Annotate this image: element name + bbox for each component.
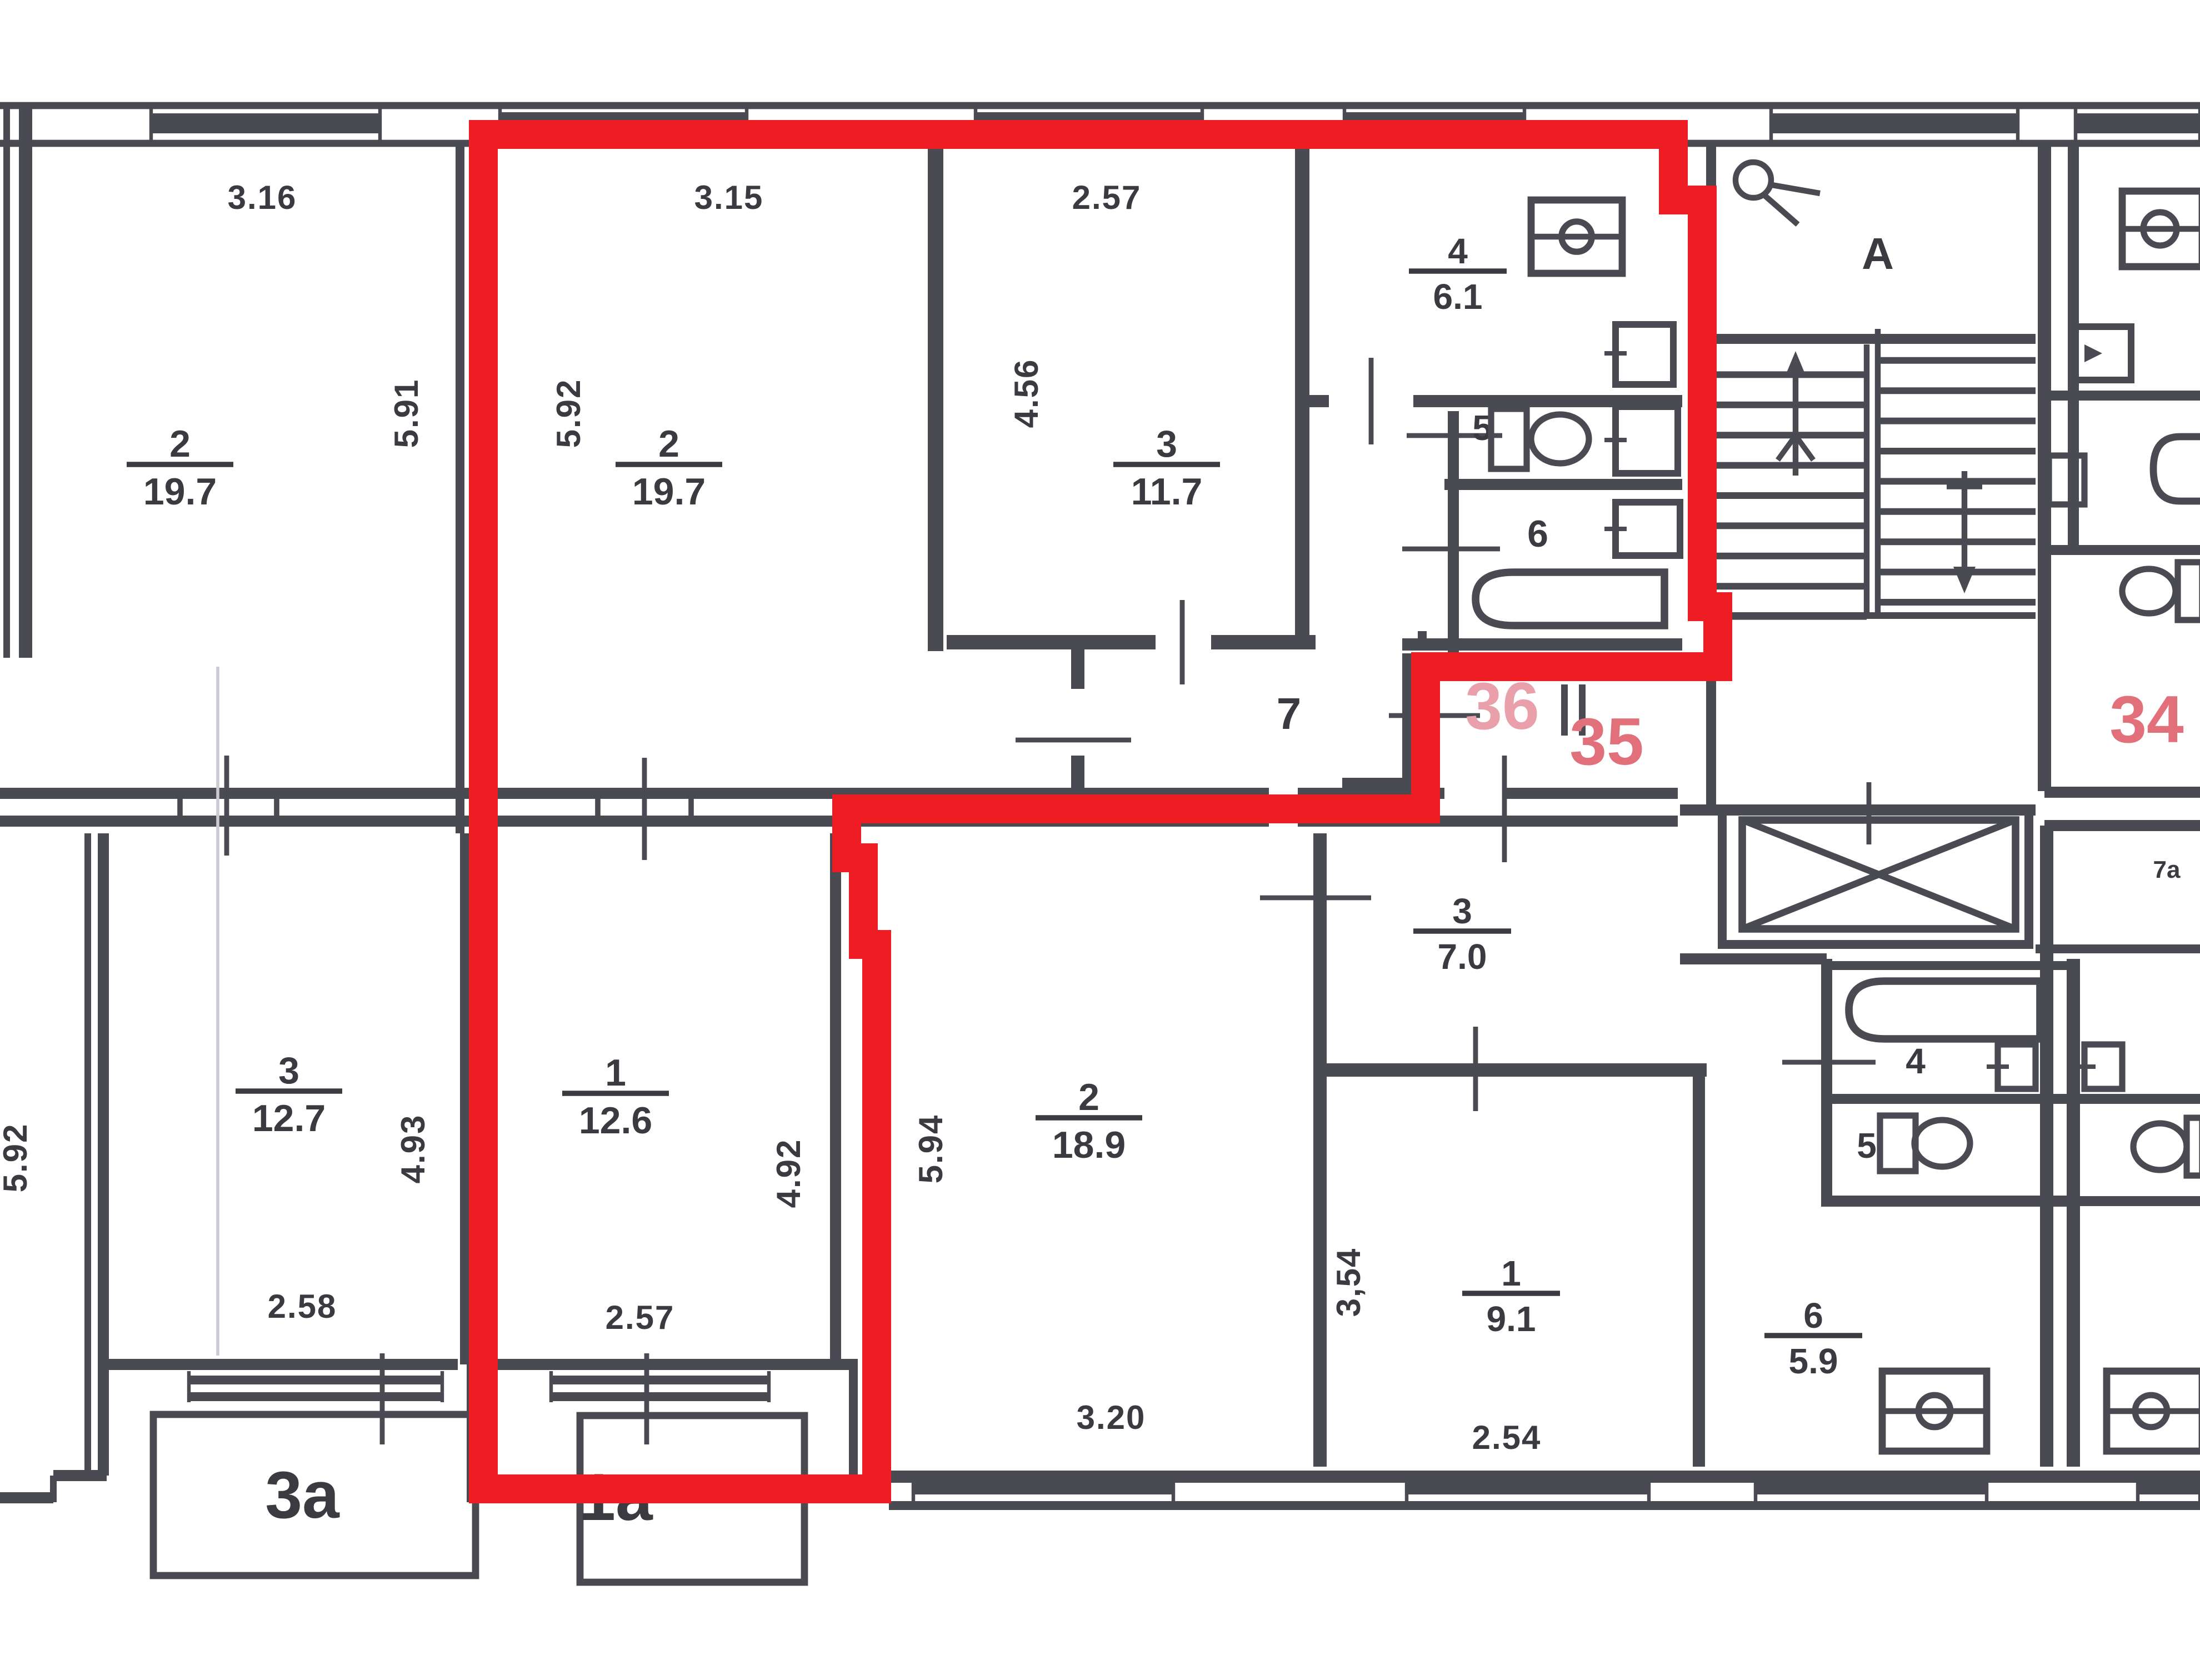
- svg-text:3: 3: [1452, 891, 1472, 931]
- svg-text:34: 34: [2109, 682, 2184, 757]
- svg-text:3: 3: [278, 1049, 299, 1092]
- svg-text:6.1: 6.1: [1433, 277, 1483, 317]
- svg-text:18.9: 18.9: [1052, 1124, 1126, 1166]
- svg-text:6: 6: [1803, 1296, 1823, 1336]
- svg-text:5.9: 5.9: [1789, 1341, 1838, 1381]
- svg-text:2: 2: [1078, 1076, 1099, 1118]
- svg-text:4.93: 4.93: [394, 1114, 432, 1184]
- svg-text:2: 2: [169, 423, 191, 465]
- svg-text:3a: 3a: [265, 1458, 340, 1532]
- svg-text:7.0: 7.0: [1438, 937, 1487, 977]
- svg-text:2.58: 2.58: [268, 1288, 337, 1325]
- svg-text:2: 2: [658, 423, 679, 465]
- svg-text:7: 7: [1277, 689, 1302, 738]
- svg-text:4.92: 4.92: [770, 1139, 807, 1208]
- svg-text:1: 1: [1501, 1253, 1521, 1293]
- svg-text:7a: 7a: [2153, 856, 2181, 883]
- svg-text:3.16: 3.16: [228, 179, 297, 216]
- svg-text:2.57: 2.57: [1072, 179, 1142, 216]
- svg-text:3,54: 3,54: [1330, 1248, 1367, 1317]
- svg-text:19.7: 19.7: [143, 471, 217, 513]
- svg-text:5: 5: [1857, 1126, 1877, 1166]
- svg-text:2.57: 2.57: [606, 1299, 675, 1336]
- svg-text:3.20: 3.20: [1077, 1399, 1146, 1436]
- svg-text:1: 1: [605, 1052, 626, 1094]
- svg-text:11.7: 11.7: [1131, 471, 1203, 513]
- svg-text:5.91: 5.91: [388, 379, 425, 448]
- svg-text:19.7: 19.7: [632, 471, 706, 513]
- svg-text:2.54: 2.54: [1472, 1419, 1542, 1456]
- svg-text:3.15: 3.15: [694, 179, 764, 216]
- svg-text:12.6: 12.6: [579, 1099, 652, 1142]
- svg-text:4.56: 4.56: [1008, 359, 1045, 428]
- svg-text:12.7: 12.7: [252, 1097, 326, 1139]
- svg-text:6: 6: [1527, 513, 1548, 555]
- svg-text:5.92: 5.92: [550, 379, 587, 448]
- svg-text:A: A: [1862, 229, 1894, 278]
- svg-text:3: 3: [1156, 423, 1177, 465]
- svg-text:9.1: 9.1: [1487, 1299, 1536, 1339]
- svg-text:5.92: 5.92: [0, 1123, 34, 1193]
- svg-text:35: 35: [1569, 704, 1643, 779]
- svg-text:5.94: 5.94: [912, 1114, 949, 1184]
- svg-text:4: 4: [1906, 1041, 1926, 1081]
- svg-text:4: 4: [1448, 231, 1468, 271]
